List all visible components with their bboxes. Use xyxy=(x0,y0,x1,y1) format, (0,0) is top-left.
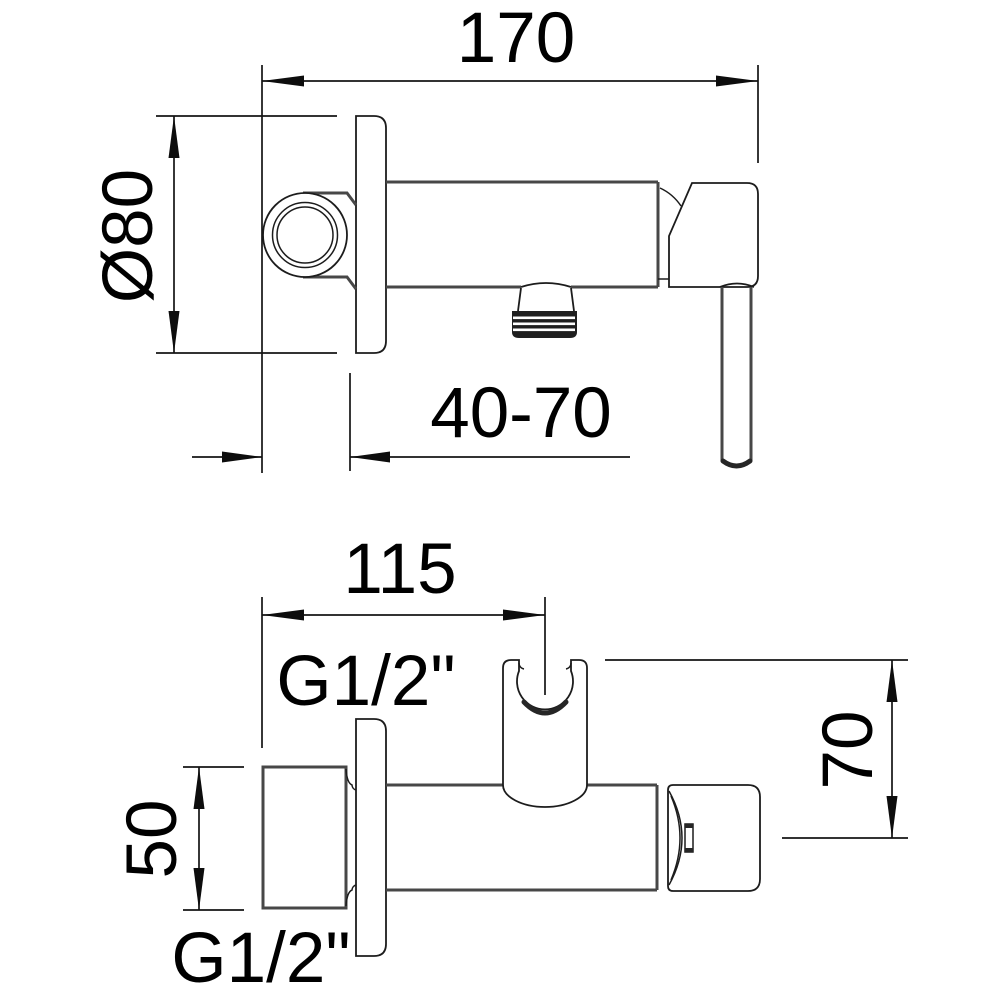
arrowhead-up xyxy=(887,660,898,702)
inlet-union xyxy=(263,767,356,908)
wall-plate xyxy=(356,116,386,353)
spout-outer-ring xyxy=(263,193,347,277)
inlet-body xyxy=(263,767,346,908)
lever-rod-end-cap xyxy=(723,461,750,466)
dim-mounting-depth: 40-70 xyxy=(192,373,630,471)
lever-rod xyxy=(722,287,751,461)
dim-label-115: 115 xyxy=(343,530,456,609)
dim-label-170: 170 xyxy=(457,0,575,78)
arrowhead-left xyxy=(262,76,304,87)
technical-drawing-page: 170 Ø80 40-70 xyxy=(0,0,1000,1000)
arrowhead-right xyxy=(503,610,545,621)
spout-outlet xyxy=(263,193,356,289)
spout-neck-bottom xyxy=(303,277,356,289)
dim-label-40-70: 40-70 xyxy=(430,374,612,453)
dim-inlet-height: 50 xyxy=(113,767,244,910)
outlet-dome xyxy=(521,283,571,287)
thread-grooves xyxy=(513,317,575,332)
handle xyxy=(658,183,758,466)
dim-label-diameter-80: Ø80 xyxy=(89,169,168,303)
arrowhead-down xyxy=(194,868,205,910)
arrowhead-up xyxy=(169,116,180,158)
wall-plate-edge xyxy=(356,719,386,956)
arrowhead-down xyxy=(887,796,898,838)
handle-hub-plan xyxy=(668,785,760,891)
handle-hub xyxy=(669,183,758,287)
cartridge-joint-arc xyxy=(660,188,681,206)
outlet-neck-sides xyxy=(518,288,574,311)
side-view: 170 Ø80 40-70 xyxy=(89,0,758,473)
arrowhead-down xyxy=(169,311,180,353)
dim-label-70: 70 xyxy=(809,711,888,790)
faucet-body xyxy=(386,182,658,287)
hose-outlet xyxy=(512,283,577,338)
arrowhead-right xyxy=(716,76,758,87)
thread-label-top: G1/2" xyxy=(276,642,455,721)
plan-view: 115 G1/2" 50 G1/2" 70 xyxy=(113,530,908,998)
thread-label-bottom: G1/2" xyxy=(171,919,350,998)
arrowhead-left xyxy=(262,610,304,621)
arrowhead-left xyxy=(350,452,390,463)
technical-drawing: 170 Ø80 40-70 xyxy=(0,0,1000,1000)
arrowhead-right xyxy=(222,452,262,463)
dim-label-50: 50 xyxy=(113,800,192,879)
arrowhead-up xyxy=(194,767,205,809)
